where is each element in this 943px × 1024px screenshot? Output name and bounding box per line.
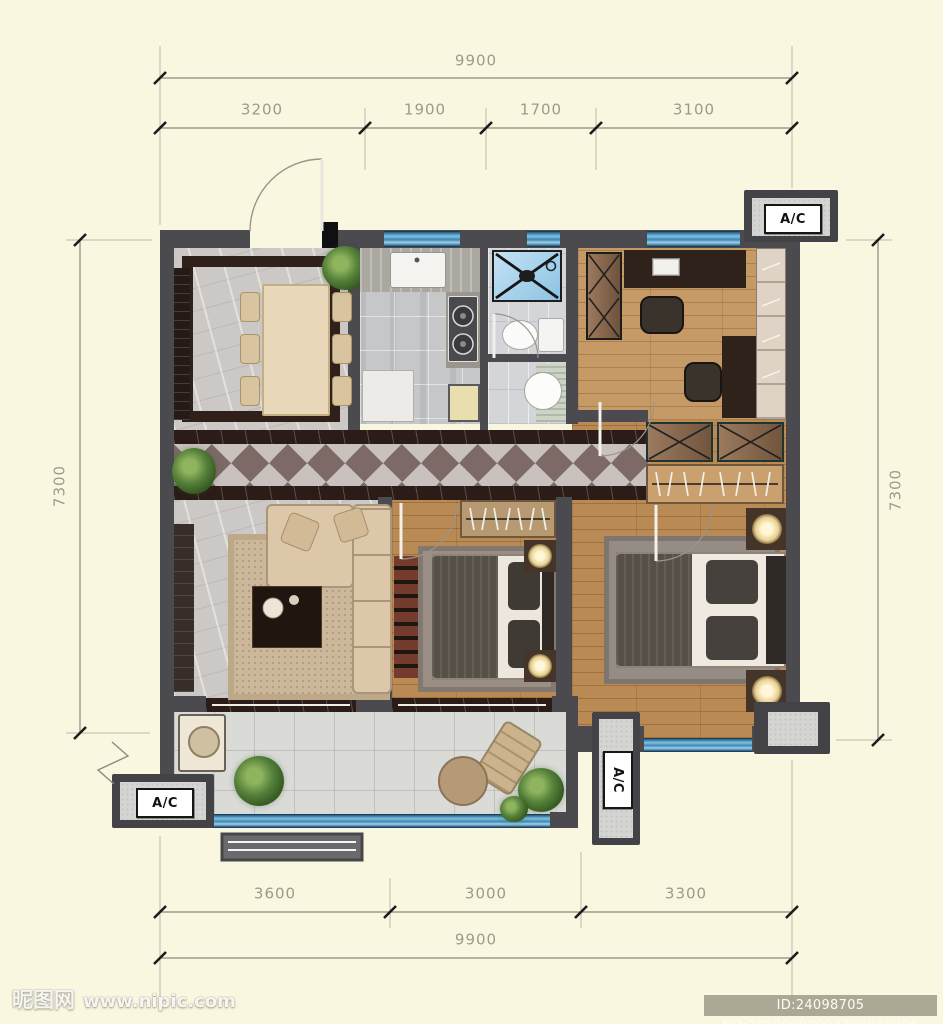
study-cabinet-left bbox=[586, 252, 622, 340]
ac-label-top-right: A/C bbox=[764, 204, 822, 234]
wall-kitchen-right bbox=[480, 248, 488, 430]
hallway-plant bbox=[172, 448, 216, 494]
study-bookshelf bbox=[756, 248, 786, 420]
study-window bbox=[647, 231, 740, 247]
dim-bottom-seg-2: 3000 bbox=[465, 887, 507, 902]
entry-pier bbox=[322, 222, 338, 248]
balcony-door-threshold-living bbox=[206, 698, 356, 712]
wall-right bbox=[786, 230, 800, 752]
ac-platform-inner bbox=[768, 712, 818, 746]
master-pillow bbox=[706, 616, 758, 660]
ac-label-balcony-mid: A/C bbox=[603, 751, 633, 809]
wall-bedroom2-right bbox=[556, 497, 572, 700]
watermark-url: www.nipic.com bbox=[83, 993, 236, 1011]
dining-sideboard bbox=[174, 268, 190, 420]
kitchen-fridge bbox=[362, 370, 414, 422]
wall-bath-right bbox=[566, 248, 578, 424]
ac-label-text: A/C bbox=[612, 767, 625, 793]
master-wardrobe-hanger-section bbox=[646, 464, 784, 504]
dim-bottom-seg-3: 3300 bbox=[665, 887, 707, 902]
washing-machine-drum bbox=[188, 726, 220, 758]
image-id-bar: ID:24098705 NO:20200908094759950086 bbox=[704, 995, 937, 1016]
wall-balcony-post-right bbox=[550, 812, 578, 828]
balcony-plant-cluster2 bbox=[500, 796, 528, 822]
shower-tray bbox=[492, 250, 562, 302]
balcony-window bbox=[202, 814, 550, 828]
master-lamp-top bbox=[752, 514, 782, 544]
ac-platform-bottom-right bbox=[754, 702, 830, 754]
dim-top-seg-1: 3200 bbox=[241, 103, 283, 118]
toilet-bowl bbox=[502, 320, 538, 350]
dim-left: 7300 bbox=[53, 465, 68, 507]
master-bedroom-window bbox=[644, 738, 752, 752]
coffee-table bbox=[252, 586, 322, 648]
kitchen-stove bbox=[448, 296, 478, 362]
bath-sink bbox=[524, 372, 562, 410]
master-wardrobe-xcabinet2 bbox=[717, 422, 784, 462]
bedroom2-lamp-top bbox=[528, 544, 552, 568]
dining-chair bbox=[240, 376, 260, 406]
wall-bath-divider bbox=[488, 354, 566, 362]
watermark: 昵图网 www.nipic.com bbox=[12, 990, 236, 1011]
apartment-floorplan: A/C A/C A/C bbox=[0, 0, 943, 1024]
floorplan-page: A/C A/C A/C bbox=[0, 0, 943, 1024]
bedroom2-bed-duvet bbox=[432, 556, 498, 678]
dim-top-seg-4: 3100 bbox=[673, 103, 715, 118]
dim-bottom-total: 9900 bbox=[455, 933, 497, 948]
dim-bottom-seg-1: 3600 bbox=[254, 887, 296, 902]
dim-top-seg-3: 1700 bbox=[520, 103, 562, 118]
dim-top-seg-2: 1900 bbox=[404, 103, 446, 118]
hallway-border-top bbox=[174, 430, 650, 444]
kitchen-window bbox=[384, 231, 460, 247]
bedroom2-lamp-bottom bbox=[528, 654, 552, 678]
hallway-diamond-floor bbox=[174, 444, 650, 486]
balcony-door-threshold-bedroom2 bbox=[392, 698, 552, 712]
dining-chair bbox=[240, 334, 260, 364]
ac-label-text: A/C bbox=[152, 797, 178, 810]
balcony-round-table bbox=[438, 756, 488, 806]
wall-study-bottom bbox=[578, 410, 648, 422]
study-chair2 bbox=[684, 362, 722, 402]
dining-table bbox=[262, 284, 330, 416]
watermark-logo: 昵图网 bbox=[12, 990, 75, 1011]
study-chair bbox=[640, 296, 684, 334]
ac-label-bottom-left: A/C bbox=[136, 788, 194, 818]
dining-chair bbox=[240, 292, 260, 322]
living-tv-cabinet bbox=[174, 524, 194, 692]
balcony-plant-left bbox=[234, 756, 284, 806]
ac-label-text: A/C bbox=[780, 213, 806, 226]
kitchen-basin-cabinet bbox=[448, 384, 480, 422]
study-book bbox=[652, 258, 680, 276]
dining-chair bbox=[332, 376, 352, 406]
wall-balcony-right bbox=[566, 710, 578, 828]
master-wardrobe-xcabinet1 bbox=[646, 422, 713, 462]
dim-right: 7300 bbox=[889, 469, 904, 511]
dim-top-total: 9900 bbox=[455, 54, 497, 69]
master-pillow bbox=[706, 560, 758, 604]
dining-chair bbox=[332, 292, 352, 322]
kitchen-sink bbox=[390, 252, 446, 288]
study-desk2 bbox=[722, 336, 756, 418]
master-bed-duvet bbox=[616, 554, 692, 666]
dining-chair bbox=[332, 334, 352, 364]
master-headboard bbox=[766, 556, 786, 664]
bedroom2-wardrobe bbox=[460, 500, 556, 538]
bedroom2-tv-cabinet bbox=[394, 556, 418, 678]
hallway-border-bottom bbox=[174, 486, 650, 500]
toilet-tank bbox=[538, 318, 564, 352]
study-desk bbox=[624, 250, 746, 288]
shower-window bbox=[527, 231, 560, 247]
